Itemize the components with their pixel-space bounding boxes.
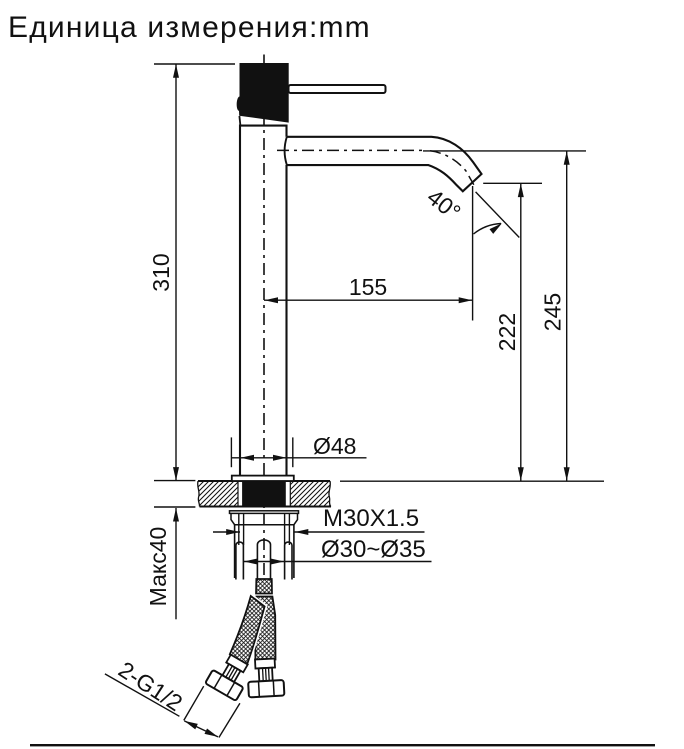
svg-text:Макс40: Макс40 [145,527,171,607]
svg-text:M30X1.5: M30X1.5 [323,505,419,532]
svg-text:2-G1/2: 2-G1/2 [114,656,187,716]
svg-text:40°: 40° [422,184,465,226]
svg-text:310: 310 [148,253,174,291]
svg-text:Ø48: Ø48 [313,433,356,459]
svg-text:Единица измерения:mm: Единица измерения:mm [8,11,371,44]
svg-text:222: 222 [494,313,520,351]
svg-text:155: 155 [349,274,387,300]
svg-text:Ø30~Ø35: Ø30~Ø35 [321,536,426,563]
svg-text:245: 245 [540,293,566,331]
